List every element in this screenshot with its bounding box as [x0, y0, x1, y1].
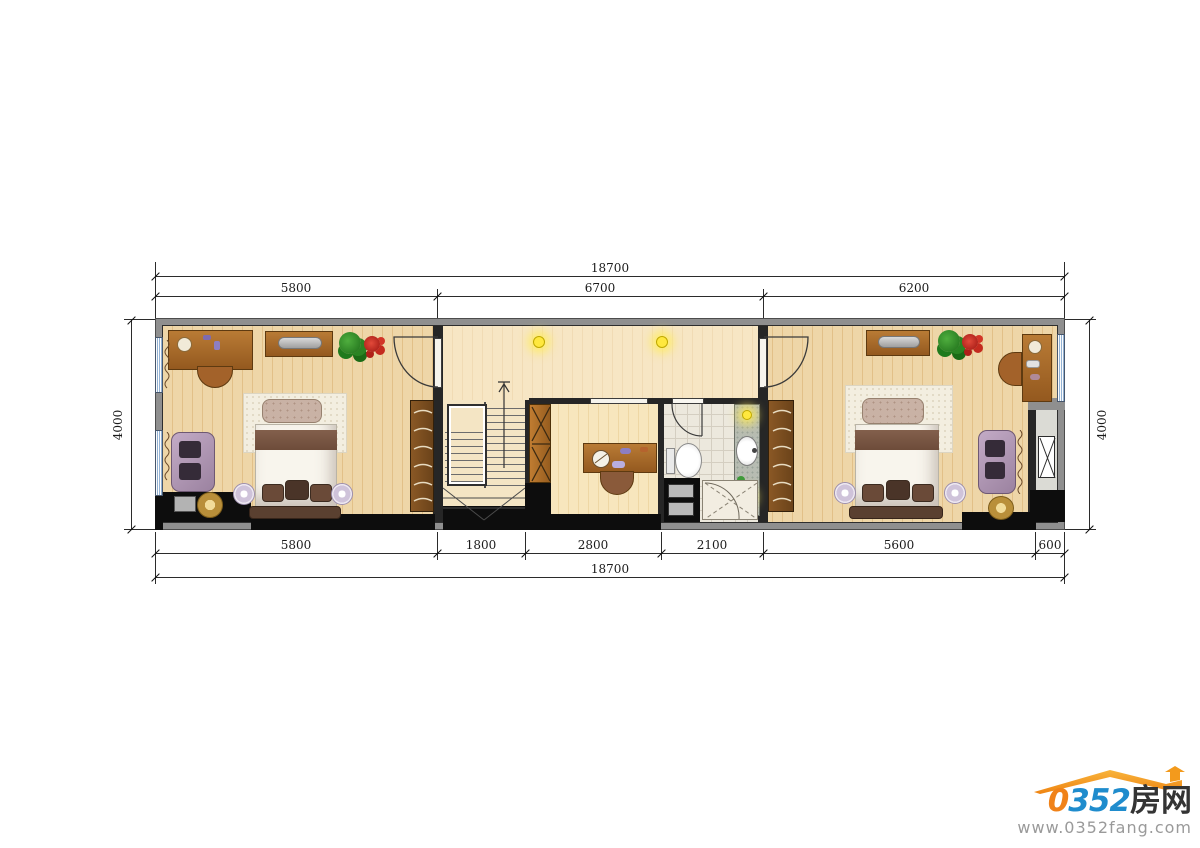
desk-plate	[177, 337, 192, 352]
door-swing	[762, 334, 812, 390]
bed-headboard	[862, 398, 924, 424]
fan-icon	[988, 496, 1014, 520]
bed-pillow	[862, 484, 884, 502]
dim-label: 600	[1024, 538, 1076, 552]
vanity-light-icon	[742, 410, 752, 420]
dim-ext-line	[763, 532, 764, 560]
dim-line-bottom-segments	[155, 553, 1065, 554]
study-sliding-door	[590, 398, 648, 404]
bedside-lamp	[944, 482, 966, 504]
dim-label: 6700	[570, 281, 630, 295]
desk-item	[612, 461, 625, 468]
storage-cabinet-icon	[529, 404, 551, 483]
ceiling-light-icon	[533, 336, 545, 348]
desk-item	[1030, 374, 1040, 380]
wardrobe-icon	[410, 400, 434, 512]
toilet-icon	[675, 443, 702, 478]
desk-item	[214, 341, 220, 350]
dim-label-right: 4000	[1095, 395, 1109, 455]
bedside-lamp	[834, 482, 856, 504]
dim-label: 6200	[884, 281, 944, 295]
curtain-icon	[163, 432, 171, 484]
dim-line-bottom-total	[155, 577, 1065, 578]
curtain-icon	[163, 340, 171, 392]
plant-icon	[938, 330, 960, 352]
radiator-squiggle	[1016, 430, 1024, 494]
dim-line-right	[1089, 320, 1090, 530]
dim-line-top-total	[155, 276, 1065, 277]
dim-label: 2100	[682, 538, 742, 552]
bedside-lamp	[331, 483, 353, 505]
sofa-cushion	[985, 440, 1005, 457]
sofa-cushion	[179, 441, 201, 458]
side-table	[174, 496, 196, 512]
stairs-icon	[443, 400, 525, 522]
dim-ext-line	[661, 532, 662, 560]
stairs-up-arrow-icon	[496, 380, 512, 472]
dim-ext-line	[1064, 262, 1065, 318]
bath-cabinet	[668, 484, 694, 498]
dim-label-left: 4000	[111, 395, 125, 455]
dim-label: 1800	[451, 538, 511, 552]
fan-icon	[197, 492, 223, 518]
dim-ext-line	[525, 532, 526, 560]
dim-ext-line	[437, 532, 438, 560]
black-wall	[525, 483, 551, 530]
globe-lines	[592, 450, 610, 468]
dim-label: 2800	[563, 538, 623, 552]
bed-pillow	[262, 484, 284, 502]
flowers-icon	[962, 334, 978, 350]
faucet	[752, 448, 757, 453]
sofa-cushion	[985, 462, 1005, 479]
dim-label: 5800	[266, 281, 326, 295]
dim-ext-line	[763, 289, 764, 318]
shaft-x-icon	[1038, 436, 1055, 478]
desk-item	[1026, 360, 1040, 368]
bed-blanket	[855, 430, 939, 450]
flowers-icon	[364, 336, 380, 352]
ceiling-light-icon	[656, 336, 668, 348]
black-wall	[155, 496, 163, 530]
bath-door-swing	[668, 402, 706, 440]
watermark-title: 0352房网	[998, 786, 1192, 816]
window-left-top	[155, 337, 163, 393]
hallway-floor	[443, 326, 760, 400]
dim-ext-line	[437, 289, 438, 318]
desk-item	[203, 335, 211, 340]
black-wall	[551, 514, 661, 530]
dim-line-left	[131, 320, 132, 530]
dim-label-top-total: 18700	[575, 261, 645, 275]
bed-pillow	[886, 480, 910, 500]
bed-pillow	[285, 480, 309, 500]
bed-bench	[249, 506, 341, 519]
dresser-handle	[278, 337, 322, 349]
shower-icon	[702, 480, 758, 520]
door-swing	[390, 334, 440, 390]
bed-bench	[849, 506, 943, 519]
wardrobe-icon	[768, 400, 794, 512]
dim-ext-line	[155, 262, 156, 318]
bed-pillow	[912, 484, 934, 502]
desk-item	[620, 448, 631, 454]
dresser-handle	[878, 336, 920, 348]
dim-line-top-segments	[155, 296, 1065, 297]
bath-cabinet	[668, 502, 694, 516]
bedside-lamp	[233, 483, 255, 505]
watermark-logo: 0352房网 www.0352fang.com	[998, 766, 1196, 842]
dim-label: 5800	[266, 538, 326, 552]
bed-headboard	[262, 399, 322, 423]
dim-ext-line	[1060, 529, 1096, 530]
desk-item	[640, 447, 648, 452]
watermark-url: www.0352fang.com	[998, 818, 1192, 837]
bed-pillow	[310, 484, 332, 502]
bed-blanket	[255, 430, 337, 450]
window-right-top	[1057, 334, 1065, 402]
sofa-cushion	[179, 463, 201, 480]
floorplan-page: 18700 5800 6700 6200 5800 1800 2800 2100…	[0, 0, 1200, 848]
window-left-bottom	[155, 430, 163, 496]
dim-label: 5600	[869, 538, 929, 552]
logo-number: 352	[1068, 783, 1130, 819]
logo-zero: 0	[1048, 783, 1069, 819]
toilet-tank	[666, 448, 675, 474]
dim-label-bottom-total: 18700	[575, 562, 645, 576]
desk-plate	[1028, 340, 1042, 354]
logo-cn: 房网	[1130, 783, 1192, 819]
plant-icon	[339, 332, 361, 354]
